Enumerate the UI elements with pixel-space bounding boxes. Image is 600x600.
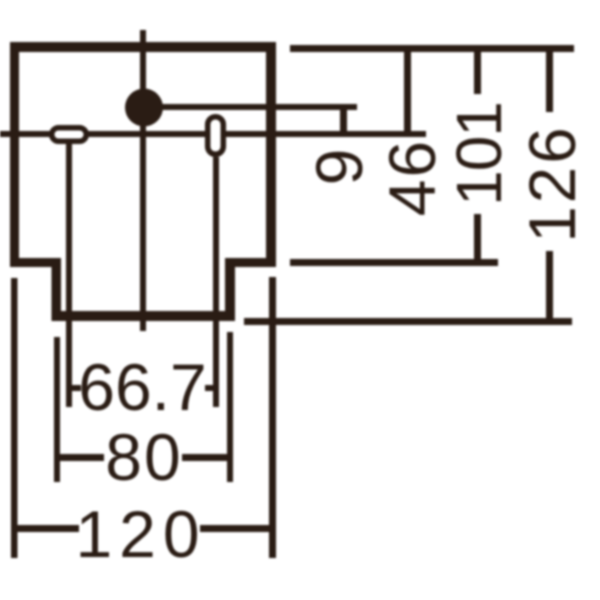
svg-text:120: 120 [75,497,206,571]
svg-text:126: 126 [516,124,589,242]
svg-text:80: 80 [105,420,182,494]
svg-text:66.7: 66.7 [78,350,206,424]
svg-text:101: 101 [443,102,515,206]
svg-text:9: 9 [302,149,376,186]
svg-text:46: 46 [375,139,449,216]
